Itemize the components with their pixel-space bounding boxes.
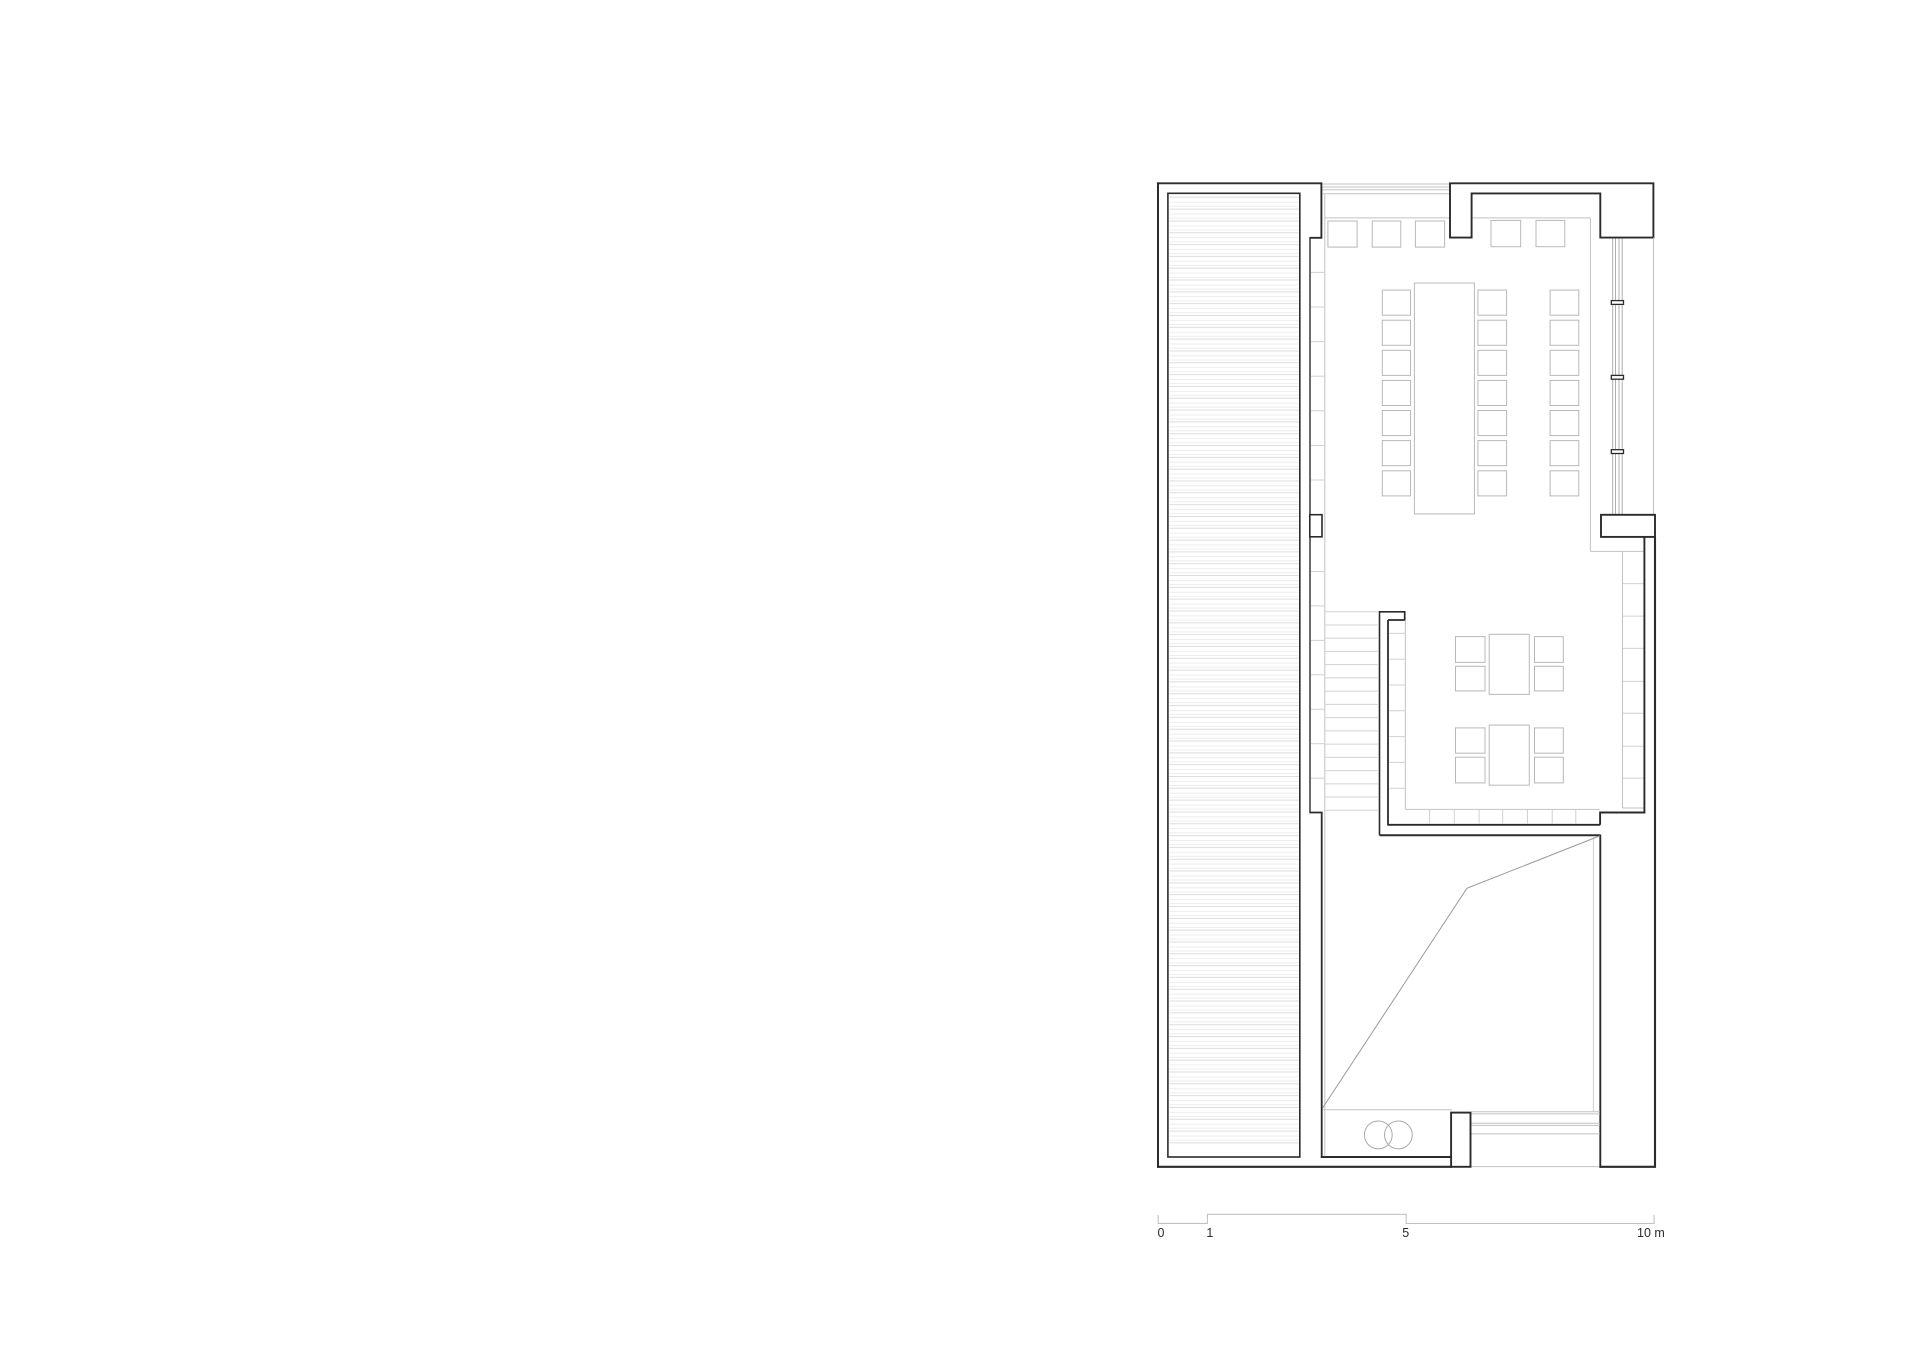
- svg-text:10 m: 10 m: [1637, 1226, 1665, 1240]
- svg-text:0: 0: [1158, 1226, 1165, 1240]
- svg-text:1: 1: [1206, 1226, 1213, 1240]
- svg-text:5: 5: [1402, 1226, 1409, 1240]
